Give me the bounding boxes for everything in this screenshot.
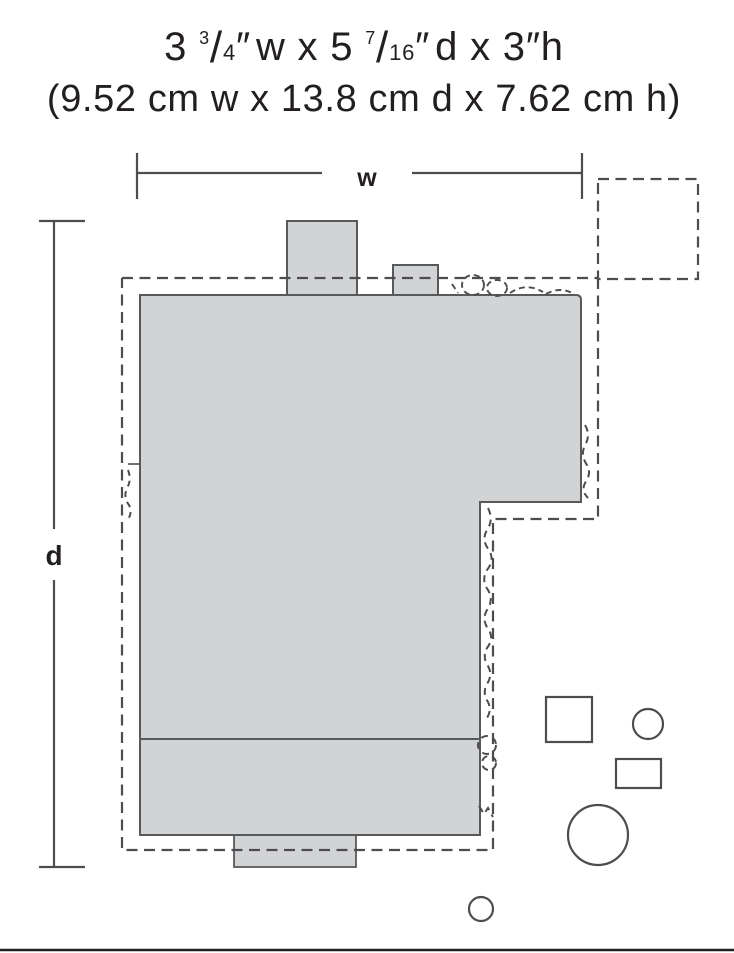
svg-text:w: w [356, 164, 377, 192]
svg-text:(9.52 cm w x 13.8 cm d x 7.62: (9.52 cm w x 13.8 cm d x 7.62 cm h) [47, 78, 681, 120]
svg-text:d: d [45, 540, 62, 571]
svg-text:3 3/4″w x 5 7/16″d x 3″h: 3 3/4″w x 5 7/16″d x 3″h [164, 23, 564, 72]
